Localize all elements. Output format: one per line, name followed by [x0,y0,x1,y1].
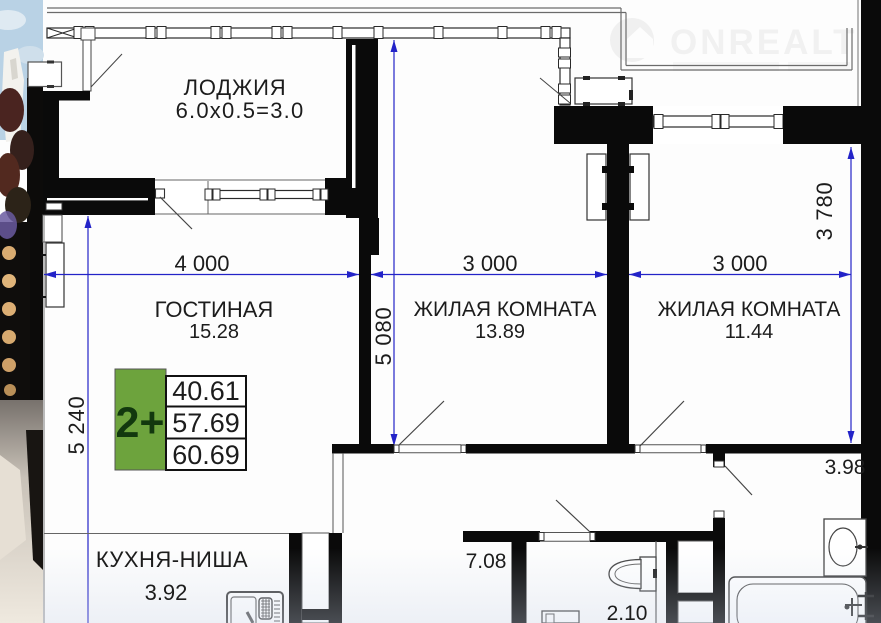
svg-text:3.98: 3.98 [825,456,866,479]
svg-text:5 240: 5 240 [64,395,89,454]
svg-text:2.10: 2.10 [607,602,648,623]
svg-text:15.28: 15.28 [189,321,239,343]
svg-text:11.44: 11.44 [725,321,774,343]
svg-text:57.69: 57.69 [172,408,240,438]
svg-text:КУХНЯ-НИША: КУХНЯ-НИША [96,547,248,572]
svg-text:6.0х0.5=3.0: 6.0х0.5=3.0 [176,98,305,123]
svg-text:ГОСТИНАЯ: ГОСТИНАЯ [155,297,274,322]
svg-text:40.61: 40.61 [172,376,240,406]
svg-text:ЖИЛАЯ КОМНАТА: ЖИЛАЯ КОМНАТА [658,298,841,321]
svg-text:ЛОДЖИЯ: ЛОДЖИЯ [184,75,287,100]
svg-text:7.08: 7.08 [466,550,507,573]
svg-text:3 780: 3 780 [812,181,837,240]
svg-text:5 080: 5 080 [371,306,396,365]
svg-text:ONREALT: ONREALT [670,23,858,62]
svg-text:4 000: 4 000 [174,251,229,276]
svg-text:2+: 2+ [115,399,164,447]
svg-text:3 000: 3 000 [462,251,517,276]
svg-text:3.92: 3.92 [145,580,188,605]
svg-text:60.69: 60.69 [172,440,240,470]
svg-text:ЖИЛАЯ КОМНАТА: ЖИЛАЯ КОМНАТА [414,298,597,321]
svg-text:3 000: 3 000 [712,251,767,276]
svg-text:13.89: 13.89 [475,321,525,343]
